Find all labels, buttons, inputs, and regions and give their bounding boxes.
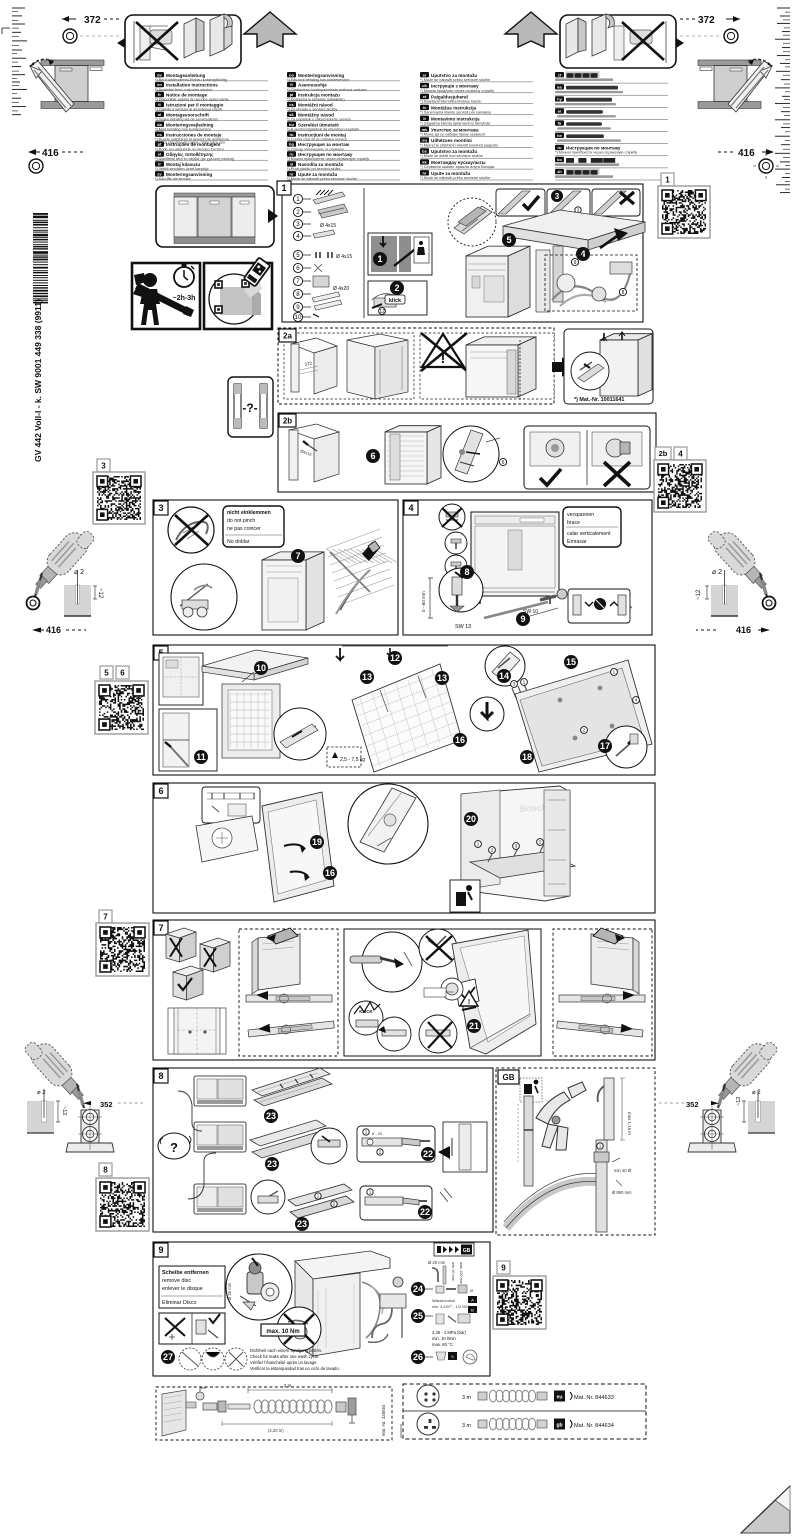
svg-text:16: 16: [325, 868, 335, 878]
svg-text:*) Tegen betaling via de servi: *) Tegen betaling via de servicedienst: [155, 118, 219, 122]
svg-text:*) Proti plačilu pri servisni: *) Proti plačilu pri servisni službi: [287, 167, 341, 171]
svg-text:23: 23: [266, 1111, 276, 1121]
svg-text:S: S: [451, 1354, 454, 1359]
svg-text:4: 4: [296, 233, 300, 240]
svg-text:he: he: [557, 133, 562, 138]
svg-text:4: 4: [580, 249, 585, 259]
svg-text:14: 14: [499, 671, 509, 681]
svg-text:18: 18: [522, 752, 532, 762]
svg-text:max 100 mm: max 100 mm: [459, 1262, 463, 1284]
svg-text:7: 7: [296, 278, 300, 285]
svg-text:~12: ~12: [97, 588, 103, 599]
svg-text:eu: eu: [557, 1395, 563, 1401]
svg-text:6: 6: [120, 668, 125, 677]
svg-text:*) Įsigyjama klientų aptarnavi: *) Įsigyjama klientų aptarnavimo tarnybo…: [420, 122, 491, 126]
svg-text:el: el: [158, 152, 161, 157]
svg-text:19: 19: [312, 837, 322, 847]
svg-text:9: 9: [501, 1263, 506, 1272]
svg-text:~2h-3h: ~2h-3h: [173, 295, 196, 302]
svg-text:12: 12: [390, 653, 400, 663]
svg-text:13: 13: [362, 672, 372, 682]
svg-text:Vérifier l'étanchéité après un: Vérifier l'étanchéité après un lavage.: [250, 1360, 318, 1365]
svg-text:da: da: [157, 122, 162, 127]
svg-text:hr: hr: [290, 171, 294, 176]
svg-text:5: 5: [104, 668, 109, 677]
svg-text:2b: 2b: [659, 449, 668, 458]
svg-text:0 - 60 mm: 0 - 60 mm: [421, 591, 426, 612]
svg-text:9: 9: [574, 260, 577, 266]
svg-text:2,35 - 1 MPa (bar): 2,35 - 1 MPa (bar): [432, 1330, 467, 1335]
svg-text:hu: hu: [289, 122, 294, 127]
svg-text:*) Tramite il servizio di assi: *) Tramite il servizio di assistenza cli…: [155, 108, 222, 112]
svg-text:ar: ar: [558, 109, 562, 114]
svg-text:max 1,15 m: max 1,15 m: [627, 1112, 632, 1135]
svg-text:8: 8: [622, 290, 625, 296]
svg-text:*) Može se nabaviti preko serv: *) Može se nabaviti preko servisne služb…: [420, 176, 490, 180]
svg-text:8: 8: [464, 567, 469, 577]
svg-text:-?-: -?-: [242, 401, 257, 415]
svg-text:5: 5: [296, 252, 300, 259]
svg-text:min. 10 l/min: min. 10 l/min: [432, 1336, 456, 1341]
svg-text:(2,20 m): (2,20 m): [268, 1428, 284, 1433]
svg-text:*) Yetkili servisten ücret kar: *) Yetkili servisten ücret karşılığı: [155, 167, 209, 171]
svg-text:*) Može se nabaviti preko serv: *) Može se nabaviti preko servisne služb…: [420, 78, 490, 82]
svg-text:*) Može se dobiti kod servisne: *) Može se dobiti kod servisne službe: [420, 154, 483, 158]
svg-text:23: 23: [297, 1219, 307, 1229]
svg-text:3 m: 3 m: [462, 1395, 471, 1401]
svg-text:Scheibe entfernen: Scheibe entfernen: [162, 1270, 209, 1276]
svg-text:1: 1: [613, 670, 616, 676]
svg-text:ro: ro: [290, 132, 295, 137]
svg-text:fi: fi: [290, 82, 292, 87]
svg-text:*) Можна придбати через сервіс: *) Можна придбати через сервісну службу: [420, 89, 494, 93]
svg-text:*) Contra cost de la unitatea: *) Contra cost de la unitatea service: [287, 137, 347, 141]
svg-text:416: 416: [736, 625, 751, 635]
svg-text:26: 26: [413, 1352, 423, 1362]
svg-text:Check for leaks after one wash: Check for leaks after one wash cycle.: [250, 1354, 319, 1359]
svg-text:1: 1: [296, 196, 300, 203]
svg-text:bs: bs: [422, 149, 427, 154]
svg-text:es: es: [157, 132, 162, 137]
svg-text:GB: GB: [463, 1248, 471, 1254]
svg-text:*) Fås mot betaling hos kundes: *) Fås mot betaling hos kundeservice: [287, 78, 349, 82]
svg-text:!: !: [468, 999, 470, 1006]
svg-text:1: 1: [665, 175, 670, 184]
svg-text:?: ?: [170, 1140, 178, 1155]
svg-text:No doblar: No doblar: [227, 539, 250, 545]
svg-text:416: 416: [46, 625, 61, 635]
svg-text:do not pinch: do not pinch: [227, 518, 255, 524]
svg-text:1: 1: [365, 1130, 368, 1135]
svg-text:1: 1: [281, 183, 286, 193]
svg-text:1: 1: [369, 1190, 372, 1195]
svg-text:3: 3: [513, 682, 516, 688]
svg-text:24: 24: [413, 1284, 423, 1294]
svg-text:remove disc: remove disc: [162, 1278, 191, 1284]
svg-text:Ø 4x15: Ø 4x15: [336, 254, 352, 260]
svg-text:B: B: [471, 1308, 474, 1313]
svg-text:352: 352: [100, 1100, 113, 1109]
svg-text:Mat. Nr. 844633: Mat. Nr. 844633: [574, 1395, 614, 1401]
svg-text:brace: brace: [567, 520, 580, 526]
svg-text:Ø: Ø: [470, 1288, 473, 1293]
svg-text:8 - 20: 8 - 20: [372, 1131, 383, 1136]
svg-text:10: 10: [256, 663, 266, 673]
svg-text:en: en: [157, 82, 162, 87]
svg-text:9: 9: [158, 1245, 163, 1255]
svg-text:Eliminar Disco: Eliminar Disco: [162, 1300, 196, 1306]
svg-text:2: 2: [583, 728, 586, 734]
svg-text:3: 3: [296, 221, 300, 228]
svg-text:*) Za úhradu u servisní služby: *) Za úhradu u servisní služby: [287, 108, 337, 112]
svg-text:nl: nl: [158, 112, 162, 117]
svg-text:416: 416: [42, 148, 59, 159]
svg-text:22: 22: [420, 1207, 430, 1217]
svg-text:min 10 mm: min 10 mm: [451, 1262, 455, 1281]
svg-text:17: 17: [600, 741, 610, 751]
svg-text:~12: ~12: [696, 589, 702, 600]
svg-text:kk: kk: [422, 160, 427, 165]
svg-text:Emrasar: Emrasar: [567, 539, 587, 545]
svg-text:2: 2: [296, 209, 300, 216]
svg-text:7: 7: [103, 912, 108, 921]
svg-text:2: 2: [333, 1202, 336, 1207]
svg-text:Ø 4x20: Ø 4x20: [333, 286, 349, 292]
svg-text:8: 8: [158, 1071, 163, 1081]
svg-text:16: 16: [455, 735, 465, 745]
svg-text:2: 2: [379, 1150, 382, 1155]
svg-text:min 40 Ø: min 40 Ø: [614, 1168, 632, 1173]
svg-text:20: 20: [466, 814, 476, 824]
svg-text:3 m: 3 m: [462, 1423, 471, 1429]
svg-text:*) Сервистік кызмет аркылы алу: *) Сервистік кызмет аркылы алуга болады: [420, 165, 495, 169]
svg-text:nicht einklemmen: nicht einklemmen: [227, 510, 271, 516]
svg-text:Wasserzulauf: Wasserzulauf: [432, 1299, 456, 1303]
svg-text:ne pas coincer: ne pas coincer: [227, 526, 261, 532]
svg-text:klick: klick: [389, 298, 402, 304]
svg-text:uk: uk: [422, 83, 427, 88]
svg-text:*) Tilattavissa huoltopalvelus: *) Tilattavissa huoltopalvelusta maksua …: [287, 88, 367, 92]
svg-text:10: 10: [295, 314, 302, 321]
svg-text:A: A: [471, 1298, 474, 1303]
svg-text:*) Available from customer ser: *) Available from customer service: [155, 88, 212, 92]
svg-text:6: 6: [296, 265, 300, 272]
svg-text:fr: fr: [158, 92, 161, 97]
svg-text:352: 352: [686, 1100, 699, 1109]
svg-text:*) Pode ser adquirida no Servi: *) Pode ser adquirida no Serviço Técnico: [155, 147, 224, 151]
svg-text:pl: pl: [290, 92, 294, 97]
svg-text:372: 372: [84, 15, 101, 26]
svg-text:max. 60 °C: max. 60 °C: [432, 1342, 453, 1347]
svg-text:1: 1: [317, 1194, 320, 1199]
svg-text:13: 13: [437, 673, 447, 683]
svg-text:*) Можно приобрести через серв: *) Можно приобрести через сервисную служ…: [555, 151, 637, 155]
svg-text:sr: sr: [423, 72, 427, 77]
svg-text:cs: cs: [289, 102, 294, 107]
svg-text:Bosch: Bosch: [519, 802, 547, 814]
svg-text:8: 8: [296, 291, 300, 298]
svg-text:3: 3: [101, 461, 106, 470]
svg-text:pt: pt: [158, 142, 162, 147]
svg-text:12: 12: [379, 309, 385, 315]
svg-text:sq: sq: [422, 138, 427, 143]
svg-text:calar verticalement: calar verticalement: [567, 531, 611, 537]
svg-text:*) Za poplatok u zákazníckeho: *) Za poplatok u zákazníckeho servisu: [287, 118, 351, 122]
svg-text:*) Срещу заплащане от сервиза: *) Срещу заплащане от сервиза: [287, 147, 344, 151]
svg-text:de: de: [157, 72, 162, 77]
svg-text:⌀ 2: ⌀ 2: [712, 569, 722, 576]
svg-text:*) Disponible auprès du servic: *) Disponible auprès du service après-ve…: [155, 98, 229, 102]
svg-text:*) Bei Kundendienst-Einbau kos: *) Bei Kundendienst-Einbau kostenpflicht…: [155, 78, 227, 82]
svg-text:2b: 2b: [283, 416, 292, 425]
svg-text:*) Mat.-Nr. 10011641: *) Mat.-Nr. 10011641: [574, 397, 624, 403]
svg-text:3: 3: [158, 503, 163, 513]
svg-text:1: 1: [377, 254, 382, 264]
svg-text:*) Kan fås via service: *) Kan fås via service: [155, 177, 191, 181]
svg-text:Mat. Nr. 844634: Mat. Nr. 844634: [574, 1423, 614, 1429]
svg-text:Verificar la estanqueidad tras: Verificar la estanqueidad tras un ciclo …: [250, 1366, 340, 1371]
svg-text:22: 22: [423, 1149, 433, 1159]
svg-text:9: 9: [520, 614, 525, 624]
svg-text:Ø 860 mm: Ø 860 mm: [612, 1190, 632, 1195]
svg-text:1: 1: [477, 842, 480, 848]
svg-text:*) Merret te shërbimi i klient: *) Merret te shërbimi i klientit kundrej…: [420, 143, 498, 147]
svg-text:1: 1: [599, 1144, 602, 1149]
svg-text:2 m: 2 m: [284, 1383, 292, 1388]
svg-text:sk: sk: [289, 112, 294, 117]
svg-text:gb: gb: [556, 1423, 562, 1429]
svg-text:2: 2: [577, 208, 580, 213]
svg-text:*) Mod betaling hos kundeservi: *) Mod betaling hos kundeservice: [155, 127, 211, 131]
svg-text:ru: ru: [290, 152, 295, 157]
svg-text:3: 3: [555, 192, 560, 201]
svg-text:15: 15: [566, 657, 576, 667]
svg-text:2: 2: [394, 283, 399, 293]
svg-text:23: 23: [267, 1159, 277, 1169]
svg-text:⌀ 2: ⌀ 2: [37, 1090, 46, 1096]
svg-text:*) Saadaval klienditeeninduse: *) Saadaval klienditeeninduse kaudu: [420, 100, 481, 104]
svg-text:hr: hr: [423, 170, 427, 175]
svg-text:zh: zh: [557, 169, 562, 174]
svg-text:⌀ 2: ⌀ 2: [74, 569, 84, 576]
svg-text:6: 6: [502, 460, 505, 466]
svg-text:8: 8: [103, 1165, 108, 1174]
svg-text:7: 7: [158, 923, 163, 933]
svg-text:enlever le disque: enlever le disque: [162, 1286, 203, 1292]
svg-text:6: 6: [158, 786, 163, 796]
svg-text:Ø 20 mm: Ø 20 mm: [428, 1260, 446, 1265]
svg-text:GV 442 Voll-I - k. SW 9001 44: GV 442 Voll-I - k. SW 9001 449 338 (9911…: [33, 299, 43, 462]
svg-text:6: 6: [370, 451, 375, 461]
svg-text:Ø 4x15: Ø 4x15: [320, 223, 336, 229]
svg-text:⌀ 2: ⌀ 2: [752, 1090, 761, 1096]
svg-text:mk: mk: [422, 127, 429, 132]
svg-text:416: 416: [738, 148, 755, 159]
svg-text:Ø 35 mm: Ø 35 mm: [227, 1282, 232, 1300]
svg-text:372: 372: [698, 15, 715, 26]
svg-text:2a: 2a: [283, 331, 292, 340]
svg-text:21: 21: [469, 1021, 479, 1031]
svg-text:no: no: [289, 72, 294, 77]
svg-text:max. 10 Nm: max. 10 Nm: [266, 1329, 299, 1335]
svg-text:hy: hy: [557, 97, 562, 102]
svg-text:5: 5: [506, 235, 511, 245]
svg-text:*) Може да се набави преку сер: *) Може да се набави преку сервисот: [420, 132, 486, 136]
svg-text:sl: sl: [290, 162, 293, 167]
svg-text:*) Можно приобрести через серв: *) Можно приобрести через сервисную служ…: [287, 157, 369, 161]
svg-text:2: 2: [491, 848, 494, 854]
svg-text:tr: tr: [158, 162, 161, 167]
svg-text:ka: ka: [557, 84, 562, 89]
svg-text:25: 25: [413, 1311, 423, 1321]
svg-text:Mat.-Nr. 335664: Mat.-Nr. 335664: [381, 1404, 386, 1436]
svg-text:1: 1: [523, 680, 526, 686]
svg-text:2,5 - 7,5 kg: 2,5 - 7,5 kg: [340, 757, 365, 763]
svg-text:~12: ~12: [61, 1106, 67, 1115]
svg-text:GB: GB: [503, 1073, 515, 1082]
svg-text:~12: ~12: [736, 1097, 742, 1106]
svg-text:7: 7: [295, 551, 300, 561]
svg-text:min. 4,2/97° - 1/2 NG1: min. 4,2/97° - 1/2 NG1: [432, 1305, 470, 1309]
svg-text:KLICK: KLICK: [359, 1009, 373, 1014]
svg-text:ko: ko: [557, 157, 562, 162]
svg-text:verspannen: verspannen: [567, 512, 594, 518]
svg-text:11: 11: [196, 752, 206, 762]
svg-text:27: 27: [163, 1352, 173, 1362]
svg-text:*) A vevőszolgálatnál díj elle: *) A vevőszolgálatnál díj ellenében kaph…: [287, 127, 359, 131]
svg-text:SW 13: SW 13: [455, 624, 471, 630]
svg-text:bg: bg: [289, 142, 294, 147]
svg-text:4: 4: [408, 503, 413, 513]
svg-text:4: 4: [635, 698, 638, 704]
svg-text:*) Može se nabaviti preko serv: *) Može se nabaviti preko servisne služb…: [287, 177, 357, 181]
svg-text:*) Διατίθεται από το σέρβις (μ: *) Διατίθεται από το σέρβις (με χρέωση π…: [155, 157, 235, 161]
svg-text:ru: ru: [558, 145, 563, 150]
svg-text:sv: sv: [157, 171, 162, 176]
svg-text:Dichtheit nach einem Spülgang: Dichtheit nach einem Spülgang prüfen.: [250, 1348, 322, 1353]
svg-text:4: 4: [678, 449, 683, 458]
svg-text:9: 9: [296, 304, 300, 311]
svg-text:3: 3: [515, 844, 518, 850]
svg-text:*) Dostępna w serwisie (odpłat: *) Dostępna w serwisie (odpłatnie): [287, 98, 345, 102]
svg-text:2: 2: [539, 840, 542, 846]
svg-text:*) Saņemama klientu servisā pa: *) Saņemama klientu servisā par samaksu: [420, 111, 491, 115]
